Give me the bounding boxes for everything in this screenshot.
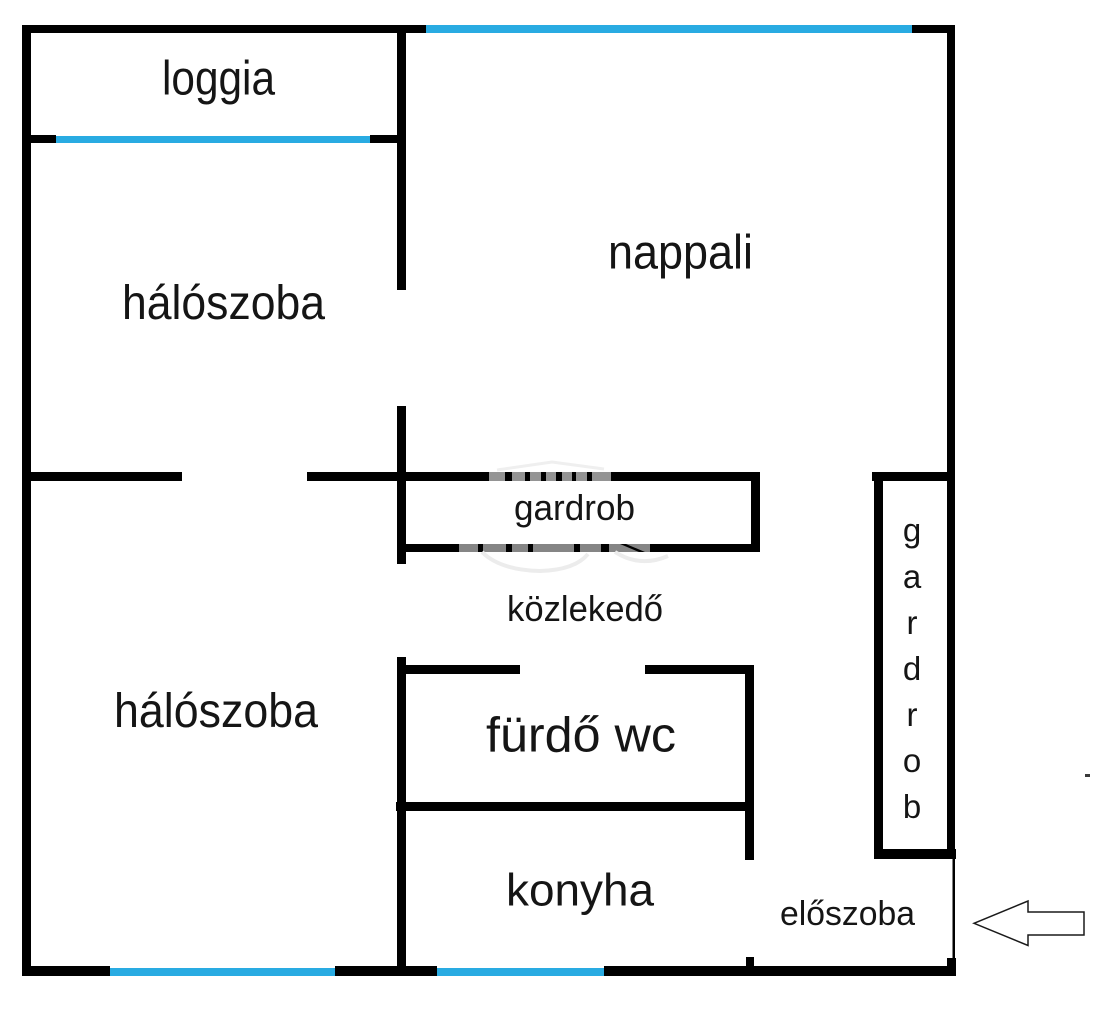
- svg-text:b: b: [903, 788, 921, 825]
- svg-text:d: d: [903, 650, 921, 687]
- svg-text:közlekedő: közlekedő: [507, 588, 663, 629]
- svg-text:g: g: [903, 512, 921, 549]
- svg-text:előszoba: előszoba: [780, 895, 915, 933]
- svg-text:loggia: loggia: [162, 53, 275, 106]
- svg-text:a: a: [903, 558, 922, 595]
- svg-text:r: r: [907, 696, 918, 733]
- svg-text:konyha: konyha: [506, 865, 655, 916]
- svg-text:fürdő wc: fürdő wc: [486, 709, 676, 763]
- svg-text:nappali: nappali: [608, 227, 753, 280]
- svg-text:r: r: [907, 604, 918, 641]
- svg-text:hálószoba: hálószoba: [114, 685, 318, 738]
- svg-text:hálószoba: hálószoba: [122, 277, 325, 330]
- svg-text:o: o: [903, 742, 921, 779]
- svg-text:gardrob: gardrob: [514, 487, 635, 528]
